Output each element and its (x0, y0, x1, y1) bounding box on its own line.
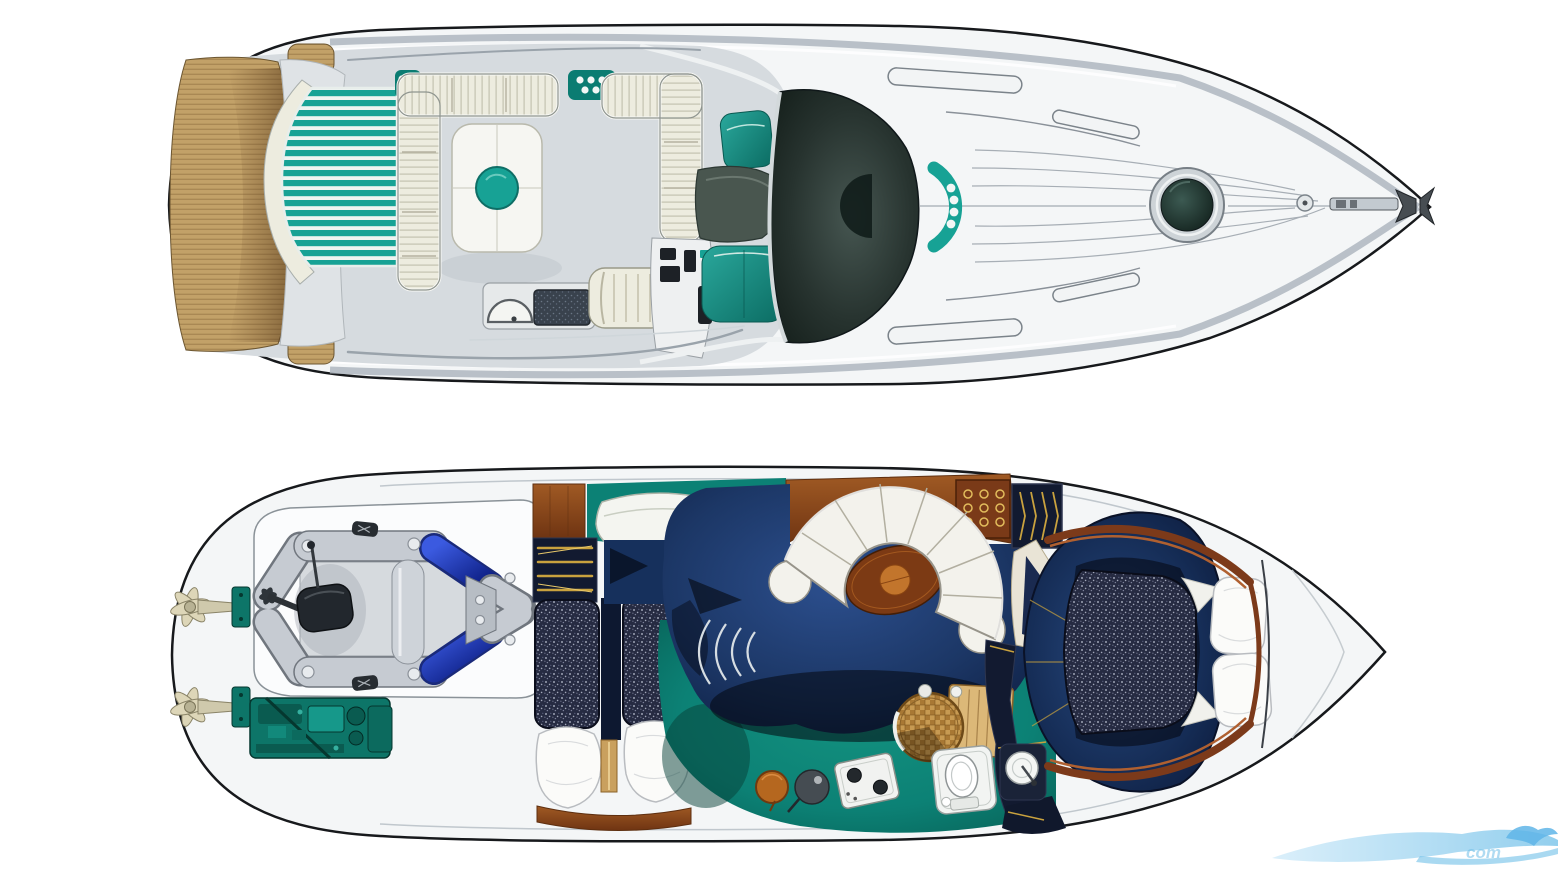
cockpit-table (452, 124, 542, 252)
bench-top-arm (398, 74, 558, 116)
helm-seat-upper (719, 110, 775, 171)
aft-sunpad (264, 80, 397, 284)
double-berth-mattress (1064, 570, 1196, 734)
wet-bar (483, 283, 595, 329)
watermark-text: com (1466, 843, 1501, 862)
deck-hatch (1150, 168, 1224, 242)
wood-locker (533, 484, 585, 538)
deck-plans-illustration: com (0, 0, 1560, 878)
watermark: com (1272, 826, 1558, 865)
engine-block (250, 698, 392, 758)
grill-icon (534, 290, 590, 325)
berth-corridor (601, 598, 621, 740)
lower-deck-plan (169, 467, 1385, 841)
main-deck-plan (169, 25, 1434, 385)
pillow-bottom (1212, 652, 1273, 728)
table-inlay (476, 167, 518, 209)
bench-left-arm (398, 92, 440, 290)
wardrobe (533, 538, 597, 602)
tender-garage (254, 500, 540, 698)
brochure-page: com (0, 0, 1560, 878)
bench-right-arm (660, 74, 702, 242)
seat-shadow (438, 252, 562, 284)
sunpad-cushion (282, 88, 397, 266)
head-sink (1000, 744, 1046, 800)
toilet (931, 745, 997, 815)
berth-mattress-1 (535, 600, 599, 728)
thwart-seat (392, 560, 424, 664)
